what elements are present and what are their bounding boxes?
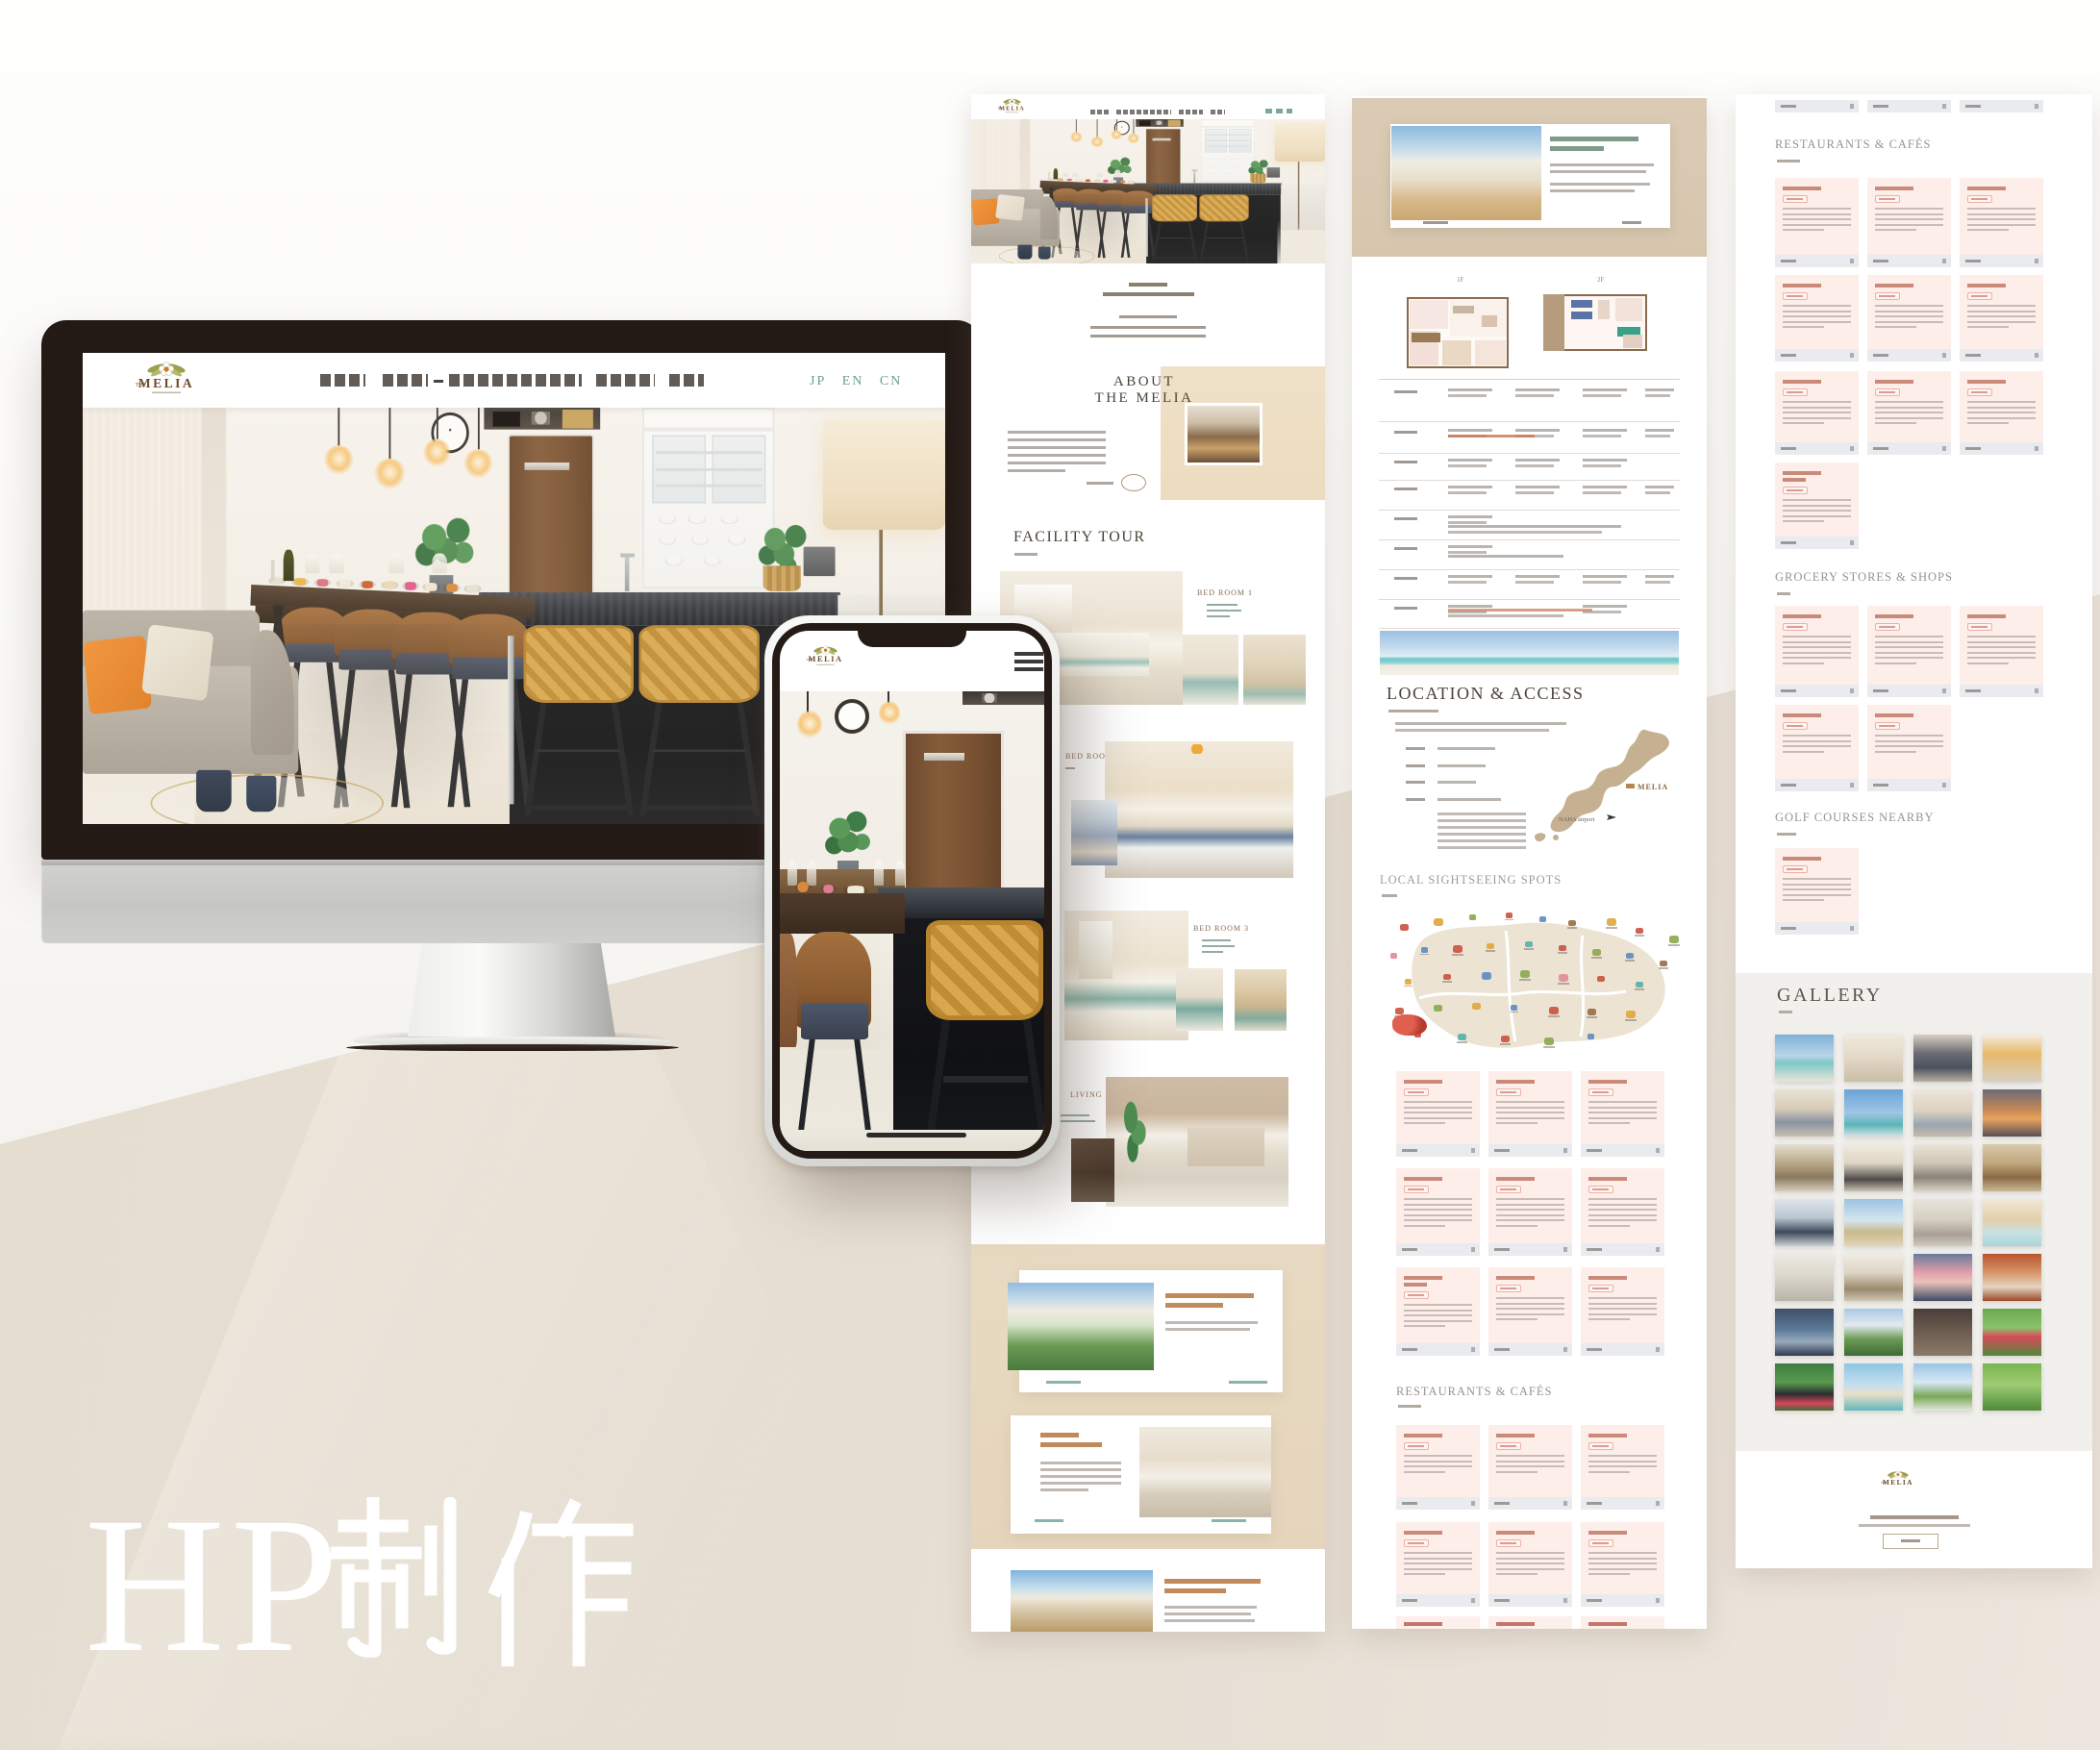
svg-text:THE: THE (807, 658, 813, 662)
svg-text:MELIA: MELIA (1637, 783, 1668, 791)
svg-text:MELIA: MELIA (809, 655, 843, 663)
svg-text:MELIA: MELIA (1883, 1478, 1913, 1487)
svg-text:MELIA: MELIA (138, 376, 194, 390)
svg-text:NAHA airport: NAHA airport (1559, 816, 1595, 823)
svg-text:MELIA: MELIA (999, 105, 1025, 112)
svg-text:THE: THE (1881, 1481, 1887, 1485)
svg-text:THE: THE (136, 383, 146, 388)
svg-text:THE: THE (998, 108, 1003, 111)
